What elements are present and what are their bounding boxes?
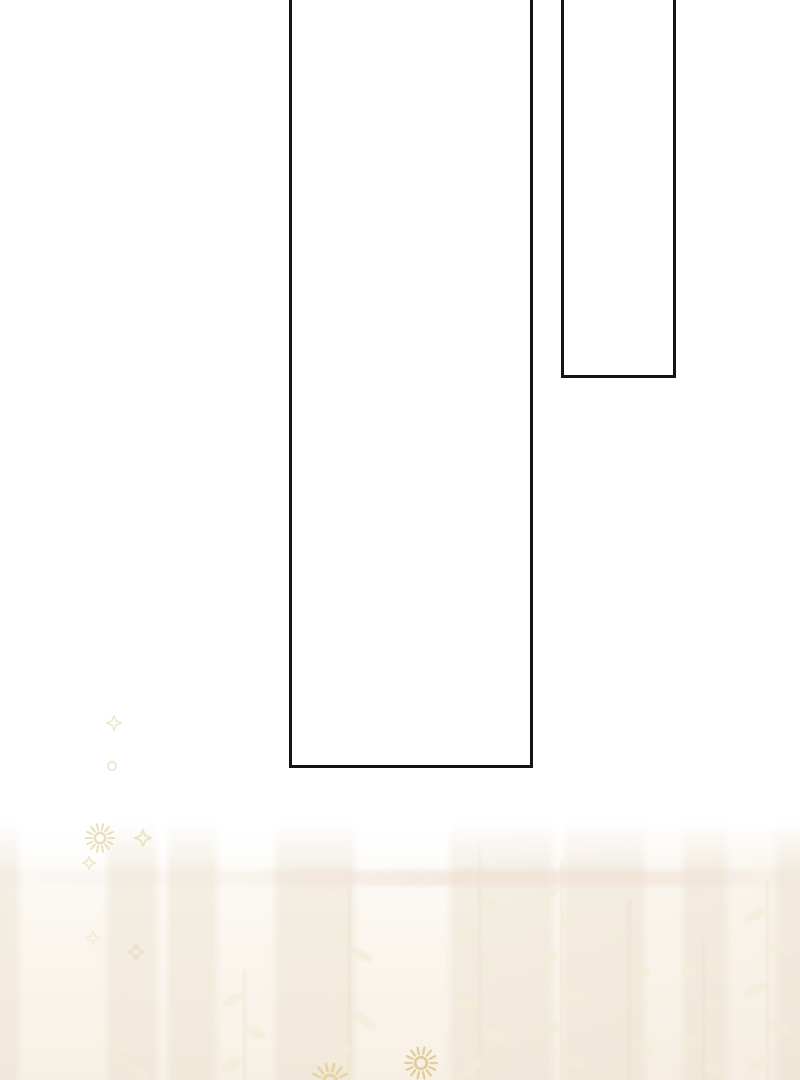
- panel-tall-empty: [289, 0, 533, 768]
- comic-page: [0, 0, 800, 1080]
- sparkle-ring-icon: [105, 759, 119, 773]
- scene-top-fade: [0, 820, 800, 880]
- bottom-scene-curtain: [0, 820, 800, 1080]
- sparkle-diamond-icon: [106, 715, 123, 732]
- panel-narrow-empty: [561, 0, 676, 378]
